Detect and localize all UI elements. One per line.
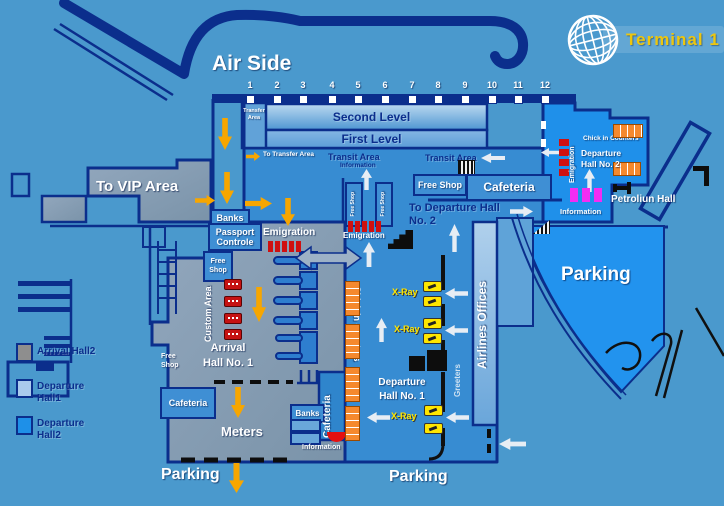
g8: 8 [430,80,446,90]
escalator-icon [704,166,709,186]
cafeteria-label: Cafeteria [322,376,333,438]
second-level-label: Second Level [256,104,487,130]
departure-hall-1-label: DepartureHall No. 1 [370,376,434,404]
gate-icon [434,95,443,104]
emigration-label: Emigration [343,231,385,240]
gate-icon [461,95,470,104]
parking-label: Parking [389,468,448,486]
legend-label: DepartureHall1 [37,381,84,405]
g12: 12 [537,80,553,90]
customs-desk-icon [224,329,242,340]
globe-icon [564,11,622,69]
x-ray-label: X-Ray [392,287,418,297]
counter-shelf [290,419,321,432]
x-ray-label: X-Ray [391,411,417,421]
legend-swatch-departure-hall2 [16,416,33,435]
airside-road [64,3,523,74]
g7: 7 [404,80,420,90]
x-ray-label: X-Ray [394,324,420,334]
terminal-title: Terminal 1 [626,30,720,50]
airside-label: Air Side [212,52,291,76]
legend-label: DepartureHall2 [37,418,84,442]
gate-icon [246,95,255,104]
x-ray-machine-icon [423,333,442,344]
g6: 6 [377,80,393,90]
x-ray-machine-icon [423,281,442,292]
departure-hall-2-label: DepartureHall No. 2 [581,148,621,170]
seat-row [268,241,303,252]
stairs-icon [427,350,447,371]
transit-area-label: Transit Area [328,152,380,162]
emigration-label: Emigration [569,137,576,183]
gate-icon [328,95,337,104]
information-label: Information [560,207,601,216]
first-level-label: First Level [256,130,487,148]
passport-controle-box: PassportControle [208,223,262,251]
free-shop-box: Free Shop [413,174,467,196]
check-in-counter-icon [345,406,360,441]
information-label: Information [302,444,341,451]
gate-icon [488,95,497,104]
g5: 5 [350,80,366,90]
to-transfer-area-label: To Transfer Area [263,151,314,158]
customs-desk-icon [224,313,242,324]
legend-swatch-arrival-hall2 [16,343,33,362]
greeters-label: Greeters [453,349,462,397]
parking-label: Parking [561,264,631,286]
emigration-label: Emigration [263,227,315,238]
customs-desk-icon [224,279,242,290]
check-in-counter-icon [345,367,360,402]
g11: 11 [510,80,526,90]
free-shop-label: FreeShop [161,352,179,370]
legend-swatch-departure-hall1 [16,379,33,398]
gate-icon [299,95,308,104]
custom-area-label: Custom Area [203,274,213,342]
sign-icon [627,182,631,194]
g10: 10 [484,80,500,90]
x-ray-machine-icon [424,405,443,416]
x-ray-machine-icon [423,296,442,307]
cafeteria-box: Cafeteria [160,387,216,419]
meters-label: Meters [221,424,263,439]
g1: 1 [242,80,258,90]
cafeteria-box: Cafeteria [466,174,552,201]
seat-column [559,139,569,177]
g3: 3 [295,80,311,90]
check-in-counter-icon [613,124,643,138]
g4: 4 [324,80,340,90]
seat-row [570,188,603,202]
to-departure-hall-label: To Departure HallNo. 2 [409,202,500,228]
check-in-counter-icon [345,324,360,359]
x-ray-machine-icon [423,318,442,329]
information-label: Information [340,162,376,169]
gate-icon [408,95,417,104]
airlines-offices-label: Airlines Offices [475,232,496,417]
petroliun-hall-label: Petroliun Hall [611,194,675,205]
arrival-hall-label: ArrivalHall No. 1 [194,341,262,371]
gate-icon [541,95,550,104]
terminal-map: Terminal 1 Air Side 1 2 3 4 5 6 7 8 9 10… [0,0,724,506]
gate-icon [514,95,523,104]
map-drawing [0,0,724,506]
to-vip-area-label: To VIP Area [96,178,178,195]
legend-label: Arrival Hall2 [37,346,95,357]
gate-icon [354,95,363,104]
customs-desk-icon [224,296,242,307]
sign-icon [613,184,617,192]
gate-icon [381,95,390,104]
stairs-icon [409,356,425,371]
gate-icon [273,95,282,104]
check-in-counter-icon [345,281,360,316]
g9: 9 [457,80,473,90]
g2: 2 [269,80,285,90]
parking-label: Parking [161,466,220,484]
transfer-room-label: TransferArea [242,108,266,122]
x-ray-machine-icon [424,423,443,434]
